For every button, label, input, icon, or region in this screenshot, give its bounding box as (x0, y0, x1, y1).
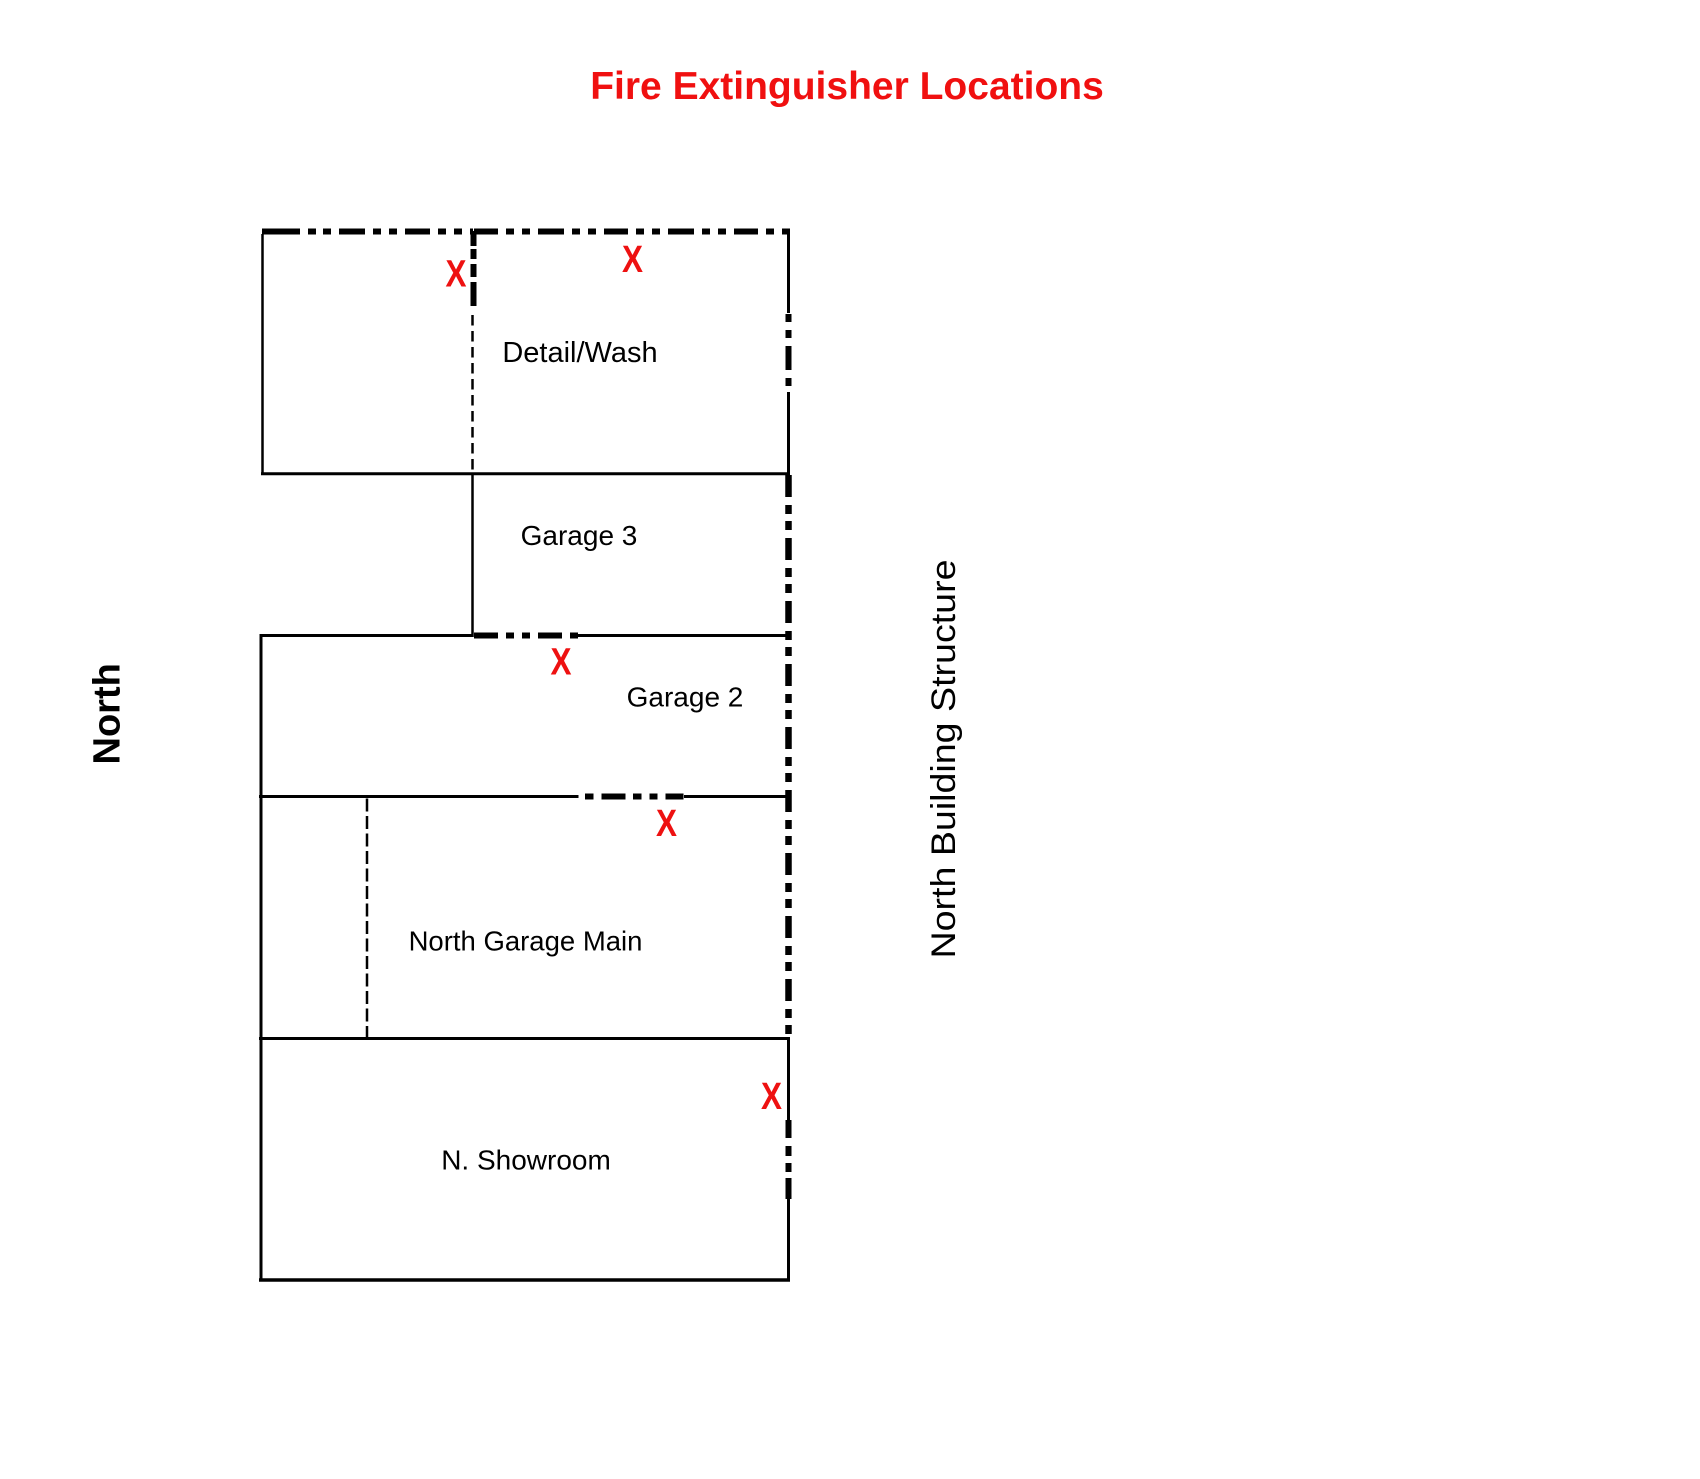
svg-text:N. Showroom: N. Showroom (441, 1145, 611, 1176)
svg-text:X: X (656, 803, 678, 845)
svg-text:North Garage Main: North Garage Main (409, 926, 643, 957)
svg-text:North: North (87, 663, 129, 764)
svg-text:X: X (446, 254, 468, 296)
svg-text:X: X (551, 642, 573, 684)
svg-text:X: X (761, 1076, 783, 1118)
svg-text:North Building Structure: North Building Structure (925, 560, 963, 959)
svg-text:X: X (622, 239, 644, 281)
svg-text:Detail/Wash: Detail/Wash (502, 337, 657, 369)
svg-text:Fire Extinguisher Locations: Fire Extinguisher Locations (590, 65, 1104, 108)
svg-text:Garage 2: Garage 2 (627, 682, 744, 713)
svg-text:Garage 3: Garage 3 (521, 520, 638, 551)
